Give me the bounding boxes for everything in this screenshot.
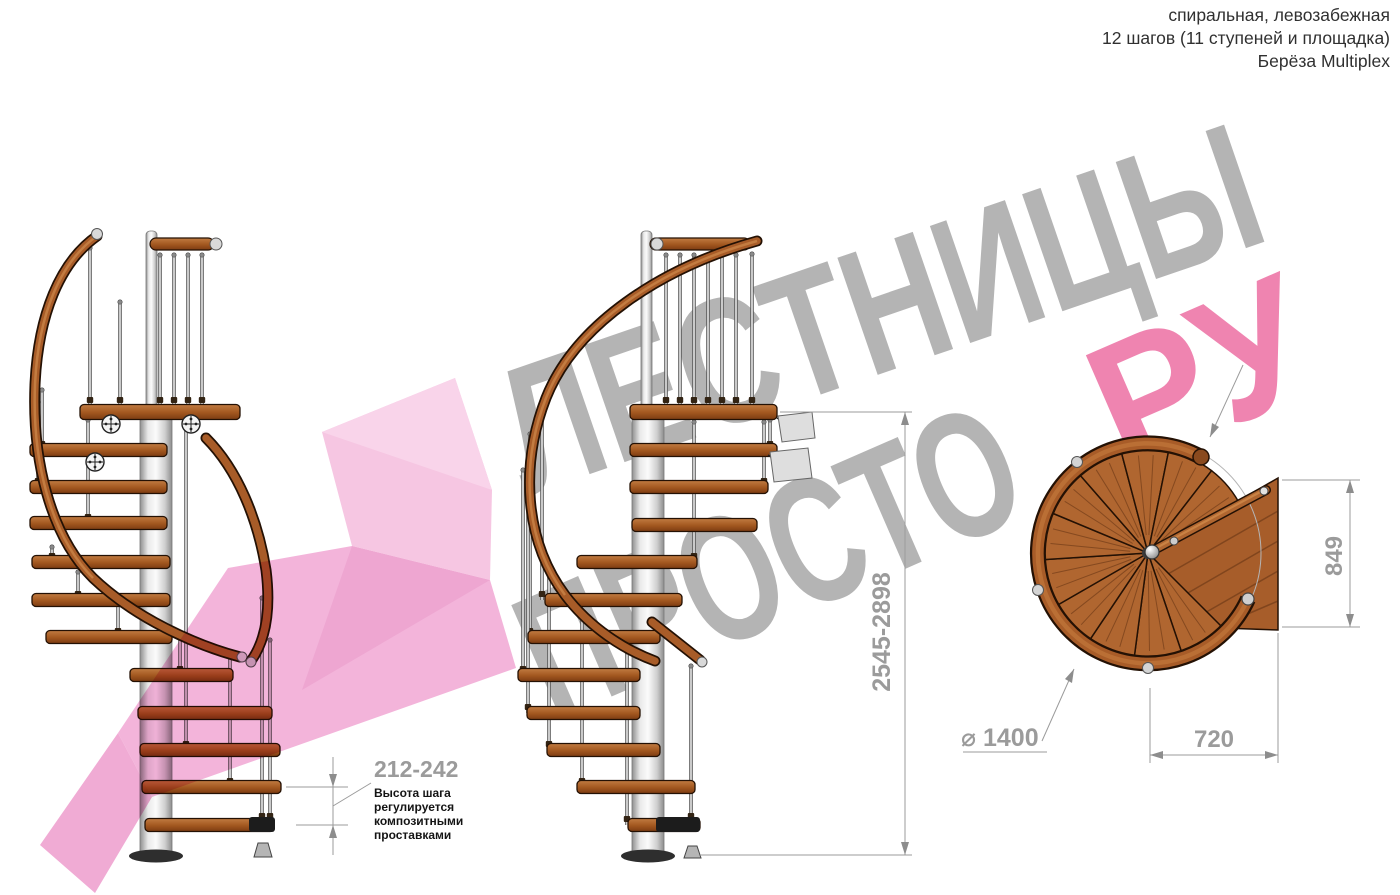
- staircase-drawing: ЛЕСТНИЦЫ ПРОСТО .РУ: [0, 0, 1400, 895]
- drawing-canvas: ЛЕСТНИЦЫ ПРОСТО .РУ: [0, 0, 1400, 895]
- column-base: [621, 850, 675, 863]
- ring-metal-endcap: [1242, 593, 1254, 605]
- column-base: [129, 850, 183, 863]
- step-height-dimension: 212-242 Высота шага регулируется компози…: [286, 756, 463, 855]
- tread: [518, 669, 640, 682]
- tread: [577, 556, 697, 569]
- baluster-collar: [117, 397, 123, 403]
- baluster-collar: [539, 591, 545, 597]
- tread: [32, 556, 170, 569]
- baluster-collar: [719, 397, 725, 403]
- step-note-line2: регулируется: [374, 800, 454, 814]
- tread: [630, 481, 768, 494]
- baluster-foot: [254, 843, 272, 857]
- baluster-collar: [199, 397, 205, 403]
- title-block: спиральная, левозабежная 12 шагов (11 ст…: [1102, 4, 1390, 73]
- staircase-type: спиральная, левозабежная: [1102, 4, 1390, 27]
- baluster-collar: [705, 397, 711, 403]
- diameter-label: ⌀ 1400: [961, 724, 1039, 752]
- baluster-foot: [684, 846, 701, 858]
- step-note-line3: композитными: [374, 814, 463, 828]
- tread: [32, 594, 170, 607]
- ring-joint-cap: [1143, 663, 1154, 674]
- tread: [46, 631, 172, 644]
- tread: [632, 519, 757, 532]
- step-height-label: 212-242: [374, 756, 458, 782]
- ring-wood-endcap: [1193, 449, 1209, 465]
- landing-platform: [80, 405, 240, 420]
- step-clamp: [249, 817, 275, 832]
- baluster-collar: [185, 397, 191, 403]
- baluster-collar: [171, 397, 177, 403]
- landing-platform: [630, 405, 777, 420]
- steps-count: 12 шагов (11 ступеней и площадка): [1102, 27, 1390, 50]
- baluster-collar: [157, 397, 163, 403]
- total-height-label: 2545-2898: [868, 572, 896, 692]
- platform-depth-dimension: 849: [1282, 480, 1360, 627]
- watermark: ЛЕСТНИЦЫ ПРОСТО .РУ: [473, 86, 1345, 758]
- baluster-collar: [691, 397, 697, 403]
- plan-view: [1033, 440, 1279, 674]
- step-note-line1: Высота шага: [374, 786, 451, 800]
- baluster-collar: [87, 397, 93, 403]
- material: Берёза Multiplex: [1102, 50, 1390, 73]
- tread: [630, 444, 777, 457]
- ring-joint-cap: [1033, 585, 1044, 596]
- center-ball: [1145, 545, 1159, 559]
- ring-joint-cap: [1072, 457, 1083, 468]
- platform-width-label: 720: [1194, 726, 1234, 753]
- baluster-collar: [733, 397, 739, 403]
- upper-pole: [146, 231, 157, 413]
- upper-pole: [641, 231, 652, 413]
- landing-handrail: [150, 238, 222, 250]
- step-clamp: [656, 817, 700, 832]
- platform-depth-label: 849: [1321, 536, 1348, 576]
- step-note-line4: проставками: [374, 828, 451, 842]
- baluster-collar: [749, 397, 755, 403]
- tread: [577, 781, 695, 794]
- handrail-cap: [92, 229, 103, 240]
- tread: [547, 744, 660, 757]
- baluster-collar: [663, 397, 669, 403]
- tread: [527, 707, 640, 720]
- baluster-collar: [677, 397, 683, 403]
